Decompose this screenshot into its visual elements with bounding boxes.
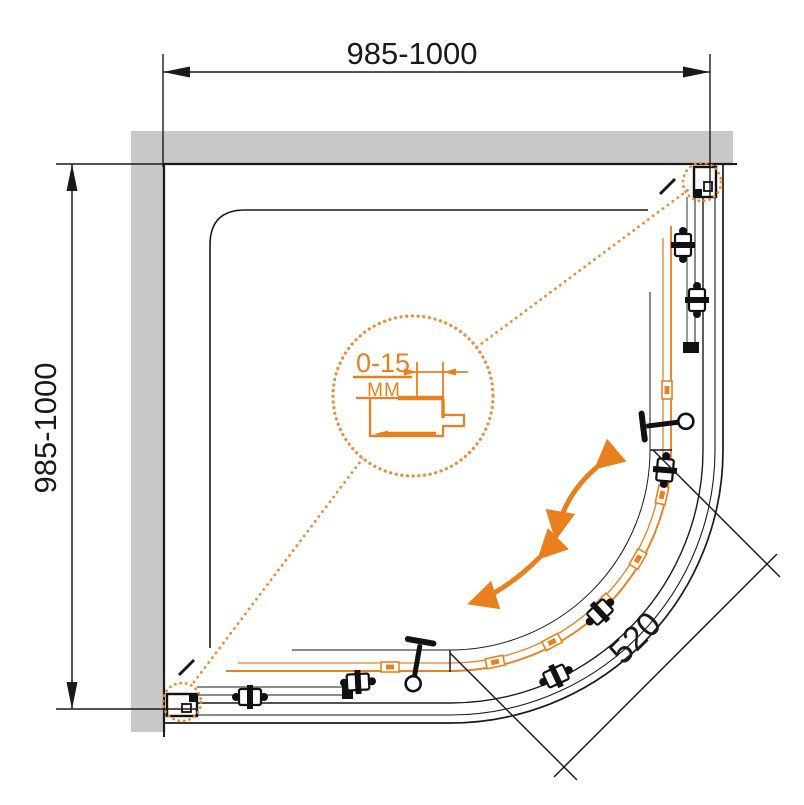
panel-stop-mark-top-right: [660, 179, 675, 194]
dimension-top: 985-1000: [163, 36, 710, 197]
door-slide-arrows: [471, 467, 597, 603]
dim-top-arrowhead-left: [163, 67, 190, 78]
door-bracket: [655, 485, 669, 505]
wall-top: [131, 131, 733, 163]
dim-diag-ext-upper: [653, 450, 780, 577]
dim-diagonal-label: 520: [602, 605, 669, 672]
door-slide-arrow-upper: [556, 467, 597, 537]
roller-bracket: [232, 685, 268, 709]
detail-range-label: 0-15: [356, 348, 410, 378]
panel-stop-mark-bottom-left: [179, 660, 194, 675]
door-bracket: [542, 633, 563, 650]
detail-leader-top-right: [477, 190, 688, 347]
roller-bracket: [671, 227, 695, 263]
dim-left-arrowhead-top: [67, 164, 78, 191]
door-handle-bottom: [396, 636, 437, 694]
door-handle-right: [638, 405, 695, 443]
dim-left-arrowhead-bottom: [67, 682, 78, 709]
roller-bracket: [535, 658, 578, 695]
dim-top-arrowhead-right: [683, 67, 710, 78]
dimension-left: 985-1000: [28, 164, 198, 709]
detail-leader-bottom-left: [191, 458, 363, 686]
dim-top-label: 985-1000: [346, 36, 477, 71]
door-bracket: [381, 662, 399, 672]
door-bracket: [485, 655, 505, 669]
wall-left: [131, 131, 163, 732]
corner-profile-top-right: [683, 163, 721, 201]
shower-enclosure-drawing: 0-15 MM 985-1000 985-1000: [0, 0, 804, 805]
technical-drawing-canvas: 0-15 MM 985-1000 985-1000: [0, 0, 804, 805]
dim-diag-line: [554, 554, 777, 777]
door-bracket: [662, 381, 672, 399]
dimension-diagonal: 520: [450, 450, 780, 780]
roller-bracket: [651, 451, 678, 489]
door-bracket: [629, 549, 647, 570]
roller-bracket: [685, 282, 709, 318]
corner-profile-bottom-left: [163, 683, 201, 721]
dim-left-label: 985-1000: [28, 362, 63, 493]
door-slide-arrow-lower: [471, 557, 540, 603]
fixed-panel-end-bracket-right: [683, 342, 699, 353]
detail-view: 0-15 MM: [333, 316, 493, 476]
